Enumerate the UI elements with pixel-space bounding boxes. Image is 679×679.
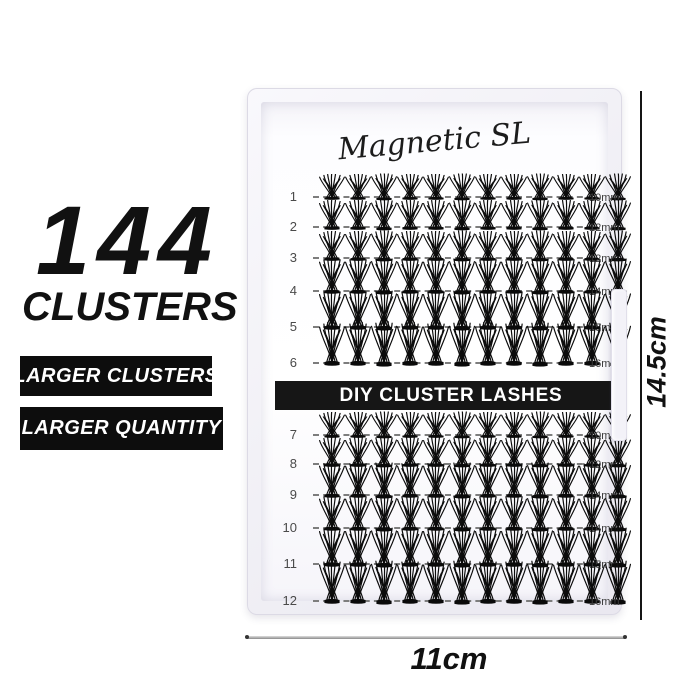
lash-cluster [553,322,579,366]
height-dimension-label: 14.5cm [642,316,673,408]
lash-cluster [319,322,345,366]
row-size-label: 16mm [589,596,625,608]
lash-tray: Magnetic SL 110mm212mm312mm414mm515mm616… [247,88,622,615]
lash-cluster [371,559,397,605]
row-clusters [319,322,587,366]
lash-cluster [371,321,397,367]
brand-logo: Magnetic SL [260,109,609,174]
lash-cluster [527,559,553,605]
lash-cluster [397,560,423,604]
width-dimension-label: 11cm [404,641,494,677]
row-number: 12 [279,593,297,608]
tray-grip-tab [611,289,627,441]
headline-label: CLUSTERS [22,287,232,327]
lash-cluster [449,559,475,605]
lash-cluster [423,322,449,366]
lash-cluster [553,560,579,604]
lash-cluster [475,560,501,604]
lash-cluster [475,322,501,366]
lash-cluster [501,322,527,366]
lash-cluster [449,321,475,367]
lash-cluster [527,321,553,367]
lash-row: 616mm [277,317,623,371]
lash-cluster [345,322,371,366]
product-image: 144 CLUSTERS LARGER CLUSTERS LARGER QUAN… [0,0,679,679]
row-number: 6 [279,355,297,370]
lash-cluster [319,560,345,604]
lash-cluster [345,560,371,604]
badge-larger-clusters: LARGER CLUSTERS [20,356,212,396]
width-dimension-line [247,636,625,639]
lash-tray-inner: Magnetic SL 110mm212mm312mm414mm515mm616… [261,102,608,601]
headline-number: 144 [36,192,236,289]
diy-cluster-lashes-banner: DIY CLUSTER LASHES [275,381,627,410]
row-clusters [319,560,587,604]
lash-cluster [423,560,449,604]
badge-larger-quantity: LARGER QUANTITY [20,407,223,450]
lash-cluster [501,560,527,604]
lash-row: 1216mm [277,555,623,609]
lash-cluster [397,322,423,366]
